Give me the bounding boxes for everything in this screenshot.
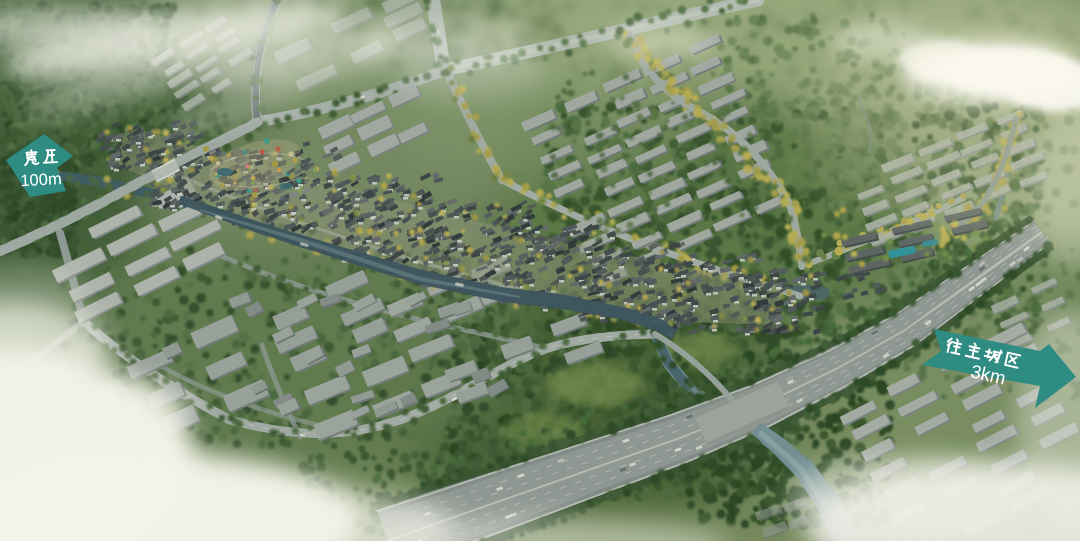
svg-text:100m: 100m (20, 169, 62, 189)
